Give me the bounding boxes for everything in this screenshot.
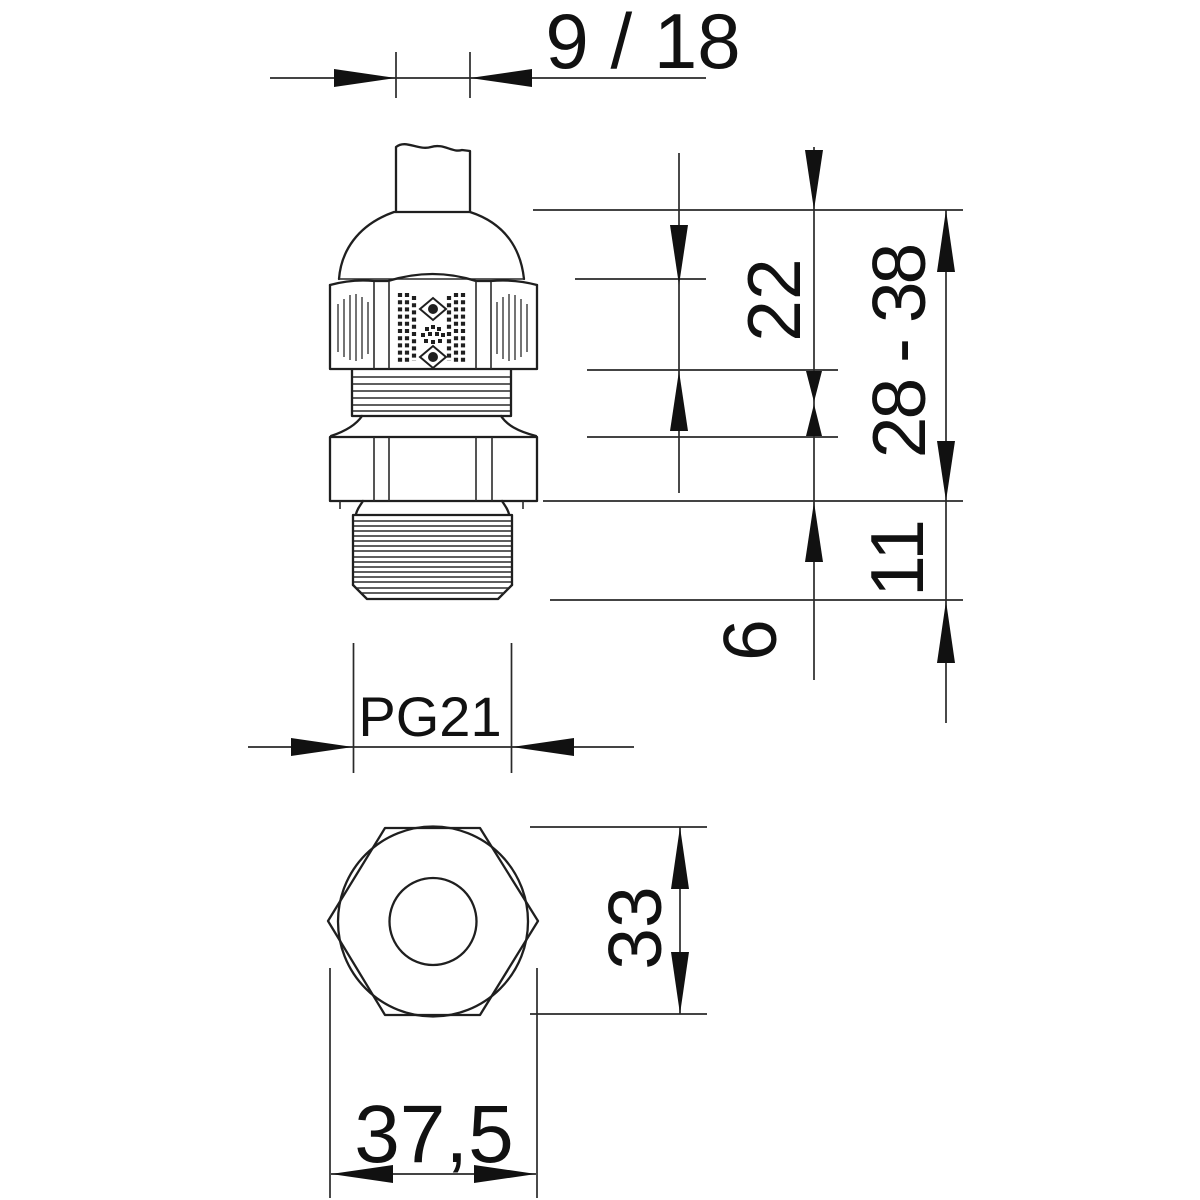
technical-drawing: 9 / 18 22 6	[0, 0, 1200, 1200]
hex-nut-knurling-left	[338, 294, 368, 361]
dimensions: 9 / 18 22 6	[248, 0, 963, 1198]
logo-dot-cluster-icon	[421, 325, 445, 344]
dim-label-clamp-range: 9 / 18	[545, 0, 740, 85]
bottom-view	[328, 827, 538, 1017]
dim-label-height-range: 28 - 38	[857, 245, 941, 458]
dim-nut-height: 22	[670, 153, 816, 493]
external-thread	[353, 515, 512, 599]
dim-across-corners: 37,5	[330, 968, 537, 1198]
logo-eye-top-icon	[420, 298, 446, 320]
cable-stub	[396, 144, 470, 212]
thread-lines	[354, 521, 511, 593]
dome-cap	[339, 212, 524, 279]
ribbed-ring-grooves	[353, 377, 510, 411]
dim-label-across-flats: 33	[593, 886, 677, 969]
dim-across-flats: 33	[530, 827, 707, 1014]
dim-height-range-column: 28 - 38 11	[855, 210, 955, 723]
dim-label-lower-section: 11	[855, 519, 939, 597]
bore-circle	[390, 878, 477, 965]
body-circle	[338, 827, 528, 1017]
ribbed-ring	[331, 370, 536, 436]
dim-label-nut-height: 22	[732, 258, 816, 341]
drawing-canvas: 9 / 18 22 6	[0, 0, 1200, 1200]
logo-eye-bottom-icon	[420, 346, 446, 368]
dim-clamp-range: 9 / 18	[270, 0, 741, 98]
side-view	[330, 144, 537, 599]
dim-thread: PG21	[248, 643, 634, 773]
hex-nut-embossed-panel	[400, 293, 463, 368]
dim-label-thread: PG21	[358, 685, 501, 748]
dim-label-across-corners: 37,5	[354, 1089, 514, 1180]
dim-label-flange: 6	[708, 619, 792, 661]
hex-flange-facet-edges	[374, 437, 492, 501]
hex-nut-knurling-right	[497, 294, 527, 361]
hex-nut	[330, 274, 537, 369]
hex-flange	[330, 437, 537, 514]
hexagon-outline	[328, 828, 538, 1015]
